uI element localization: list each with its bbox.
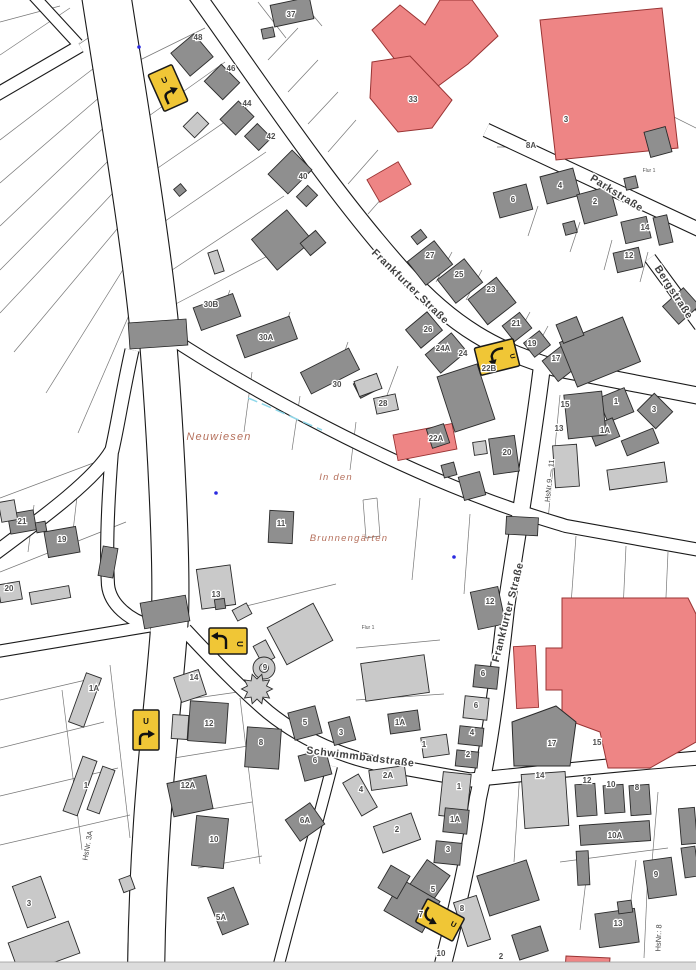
house-number: 28 <box>379 399 388 408</box>
building <box>643 857 676 899</box>
house-number: 20 <box>5 584 14 593</box>
house-number: 6 <box>481 669 486 678</box>
house-number: 9 <box>654 870 659 879</box>
house-number: 8A <box>526 141 536 150</box>
flur-label: Flur 1 <box>643 168 656 174</box>
building <box>35 521 47 533</box>
house-number: 6 <box>313 756 318 765</box>
house-number: 14 <box>536 771 545 780</box>
house-number: 8 <box>460 904 465 913</box>
detour-u-label: U <box>235 641 244 647</box>
house-number: 4 <box>558 181 563 190</box>
house-number: 24 <box>459 349 468 358</box>
building <box>563 221 578 236</box>
road-crossing-band <box>128 319 188 349</box>
map-edge-layer <box>0 962 696 970</box>
house-number: 13 <box>555 424 564 433</box>
house-number: 23 <box>487 285 496 294</box>
house-number-range-label: HsNr.: 8 <box>654 924 664 951</box>
house-number: 13 <box>212 590 221 599</box>
map-edge-strip <box>0 962 696 970</box>
building <box>576 851 590 886</box>
house-number: 3 <box>27 899 32 908</box>
house-number: 3 <box>446 845 451 854</box>
house-number: 40 <box>299 172 308 181</box>
house-number: 30 <box>333 380 342 389</box>
house-number: 2 <box>593 197 598 206</box>
poi-dot <box>214 491 218 495</box>
house-number: 1A <box>600 426 610 435</box>
house-number: 1A <box>450 815 460 824</box>
house-number: 11 <box>277 519 286 528</box>
house-number: 44 <box>243 99 252 108</box>
building <box>245 727 282 769</box>
house-number: 8 <box>635 783 640 792</box>
building <box>473 665 499 689</box>
field-name-label: In den <box>319 472 353 483</box>
house-number: 22A <box>429 434 444 443</box>
house-number: 4 <box>470 728 475 737</box>
field-name-label: Neuwiesen <box>186 431 251 443</box>
building <box>441 462 457 478</box>
building <box>595 908 639 947</box>
house-number: 14 <box>190 673 199 682</box>
house-number: 3 <box>652 405 657 414</box>
house-number: 10 <box>210 835 219 844</box>
building <box>0 500 18 522</box>
cadastral-map[interactable]: UUUUUFrankfurter StraßeFrankfurter Straß… <box>0 0 696 970</box>
house-number: 27 <box>426 251 435 260</box>
building <box>521 772 569 829</box>
house-number: 3 <box>564 115 569 124</box>
house-number: 1 <box>457 782 462 791</box>
flur-label: Flur 1 <box>362 625 375 631</box>
building <box>575 783 597 816</box>
house-number: 12 <box>205 719 214 728</box>
public-building <box>513 645 538 708</box>
house-number: 1A <box>89 684 99 693</box>
house-number: 15 <box>561 400 570 409</box>
building <box>473 441 488 456</box>
detour-sign: U <box>209 628 247 654</box>
house-number: 1 <box>84 781 89 790</box>
house-number: 6 <box>474 701 479 710</box>
house-number: 30A <box>259 333 274 342</box>
house-number: 10 <box>437 949 446 958</box>
road <box>146 340 170 970</box>
building <box>629 784 651 815</box>
house-number: 14 <box>641 223 650 232</box>
house-number: 6 <box>511 195 516 204</box>
house-number: 1 <box>614 397 619 406</box>
house-number: 42 <box>267 132 276 141</box>
detour-sign: U <box>133 710 159 750</box>
house-number: 6A <box>300 816 310 825</box>
house-number: 9 <box>263 663 268 672</box>
house-number: 17 <box>548 739 557 748</box>
building <box>214 598 225 609</box>
house-number: 2A <box>383 771 393 780</box>
poi-dot <box>137 45 141 49</box>
house-number: 22B <box>482 364 497 373</box>
house-number: 12 <box>486 597 495 606</box>
house-number: 26 <box>424 325 433 334</box>
house-number: 25 <box>455 270 464 279</box>
house-number: 12 <box>625 251 634 260</box>
building <box>553 444 580 488</box>
house-number: 30B <box>204 300 219 309</box>
house-number: 10A <box>608 831 623 840</box>
road-crossing-band <box>506 516 539 536</box>
map-canvas[interactable]: UUUUUFrankfurter StraßeFrankfurter Straß… <box>0 0 696 970</box>
field-name-label: Brunnengärten <box>310 533 388 544</box>
building <box>171 714 189 739</box>
house-number: 2 <box>395 825 400 834</box>
house-number: 2 <box>499 952 504 961</box>
house-number: 37 <box>287 10 296 19</box>
house-number: 1A <box>395 718 405 727</box>
house-number: 15 <box>593 738 602 747</box>
house-number: 19 <box>58 535 67 544</box>
house-number: 12 <box>583 776 592 785</box>
detour-sign-plate <box>133 710 159 750</box>
house-number: 13 <box>614 919 623 928</box>
house-number: 3 <box>339 728 344 737</box>
house-number: 5 <box>431 885 436 894</box>
house-number: 46 <box>227 64 236 73</box>
house-number: 10 <box>607 780 616 789</box>
house-number: 20 <box>503 448 512 457</box>
house-number: 19 <box>528 339 537 348</box>
building <box>617 900 633 914</box>
house-number: 17 <box>552 354 561 363</box>
building <box>261 27 275 39</box>
building <box>624 176 638 190</box>
house-number: 48 <box>194 33 203 42</box>
house-number: 7 <box>419 910 424 919</box>
house-number: 12A <box>181 781 196 790</box>
poi-dot <box>452 555 456 559</box>
house-number: 24A <box>436 344 451 353</box>
house-number: 21 <box>18 517 27 526</box>
building <box>678 807 696 844</box>
house-number: 2 <box>466 750 471 759</box>
house-number: 1 <box>422 740 427 749</box>
house-number: 33 <box>409 95 418 104</box>
detour-u-label: U <box>143 717 149 726</box>
house-number: 5A <box>216 913 226 922</box>
house-number: 21 <box>512 319 521 328</box>
house-number: 4 <box>359 785 364 794</box>
house-number: 8 <box>259 738 264 747</box>
house-number: 5 <box>303 718 308 727</box>
